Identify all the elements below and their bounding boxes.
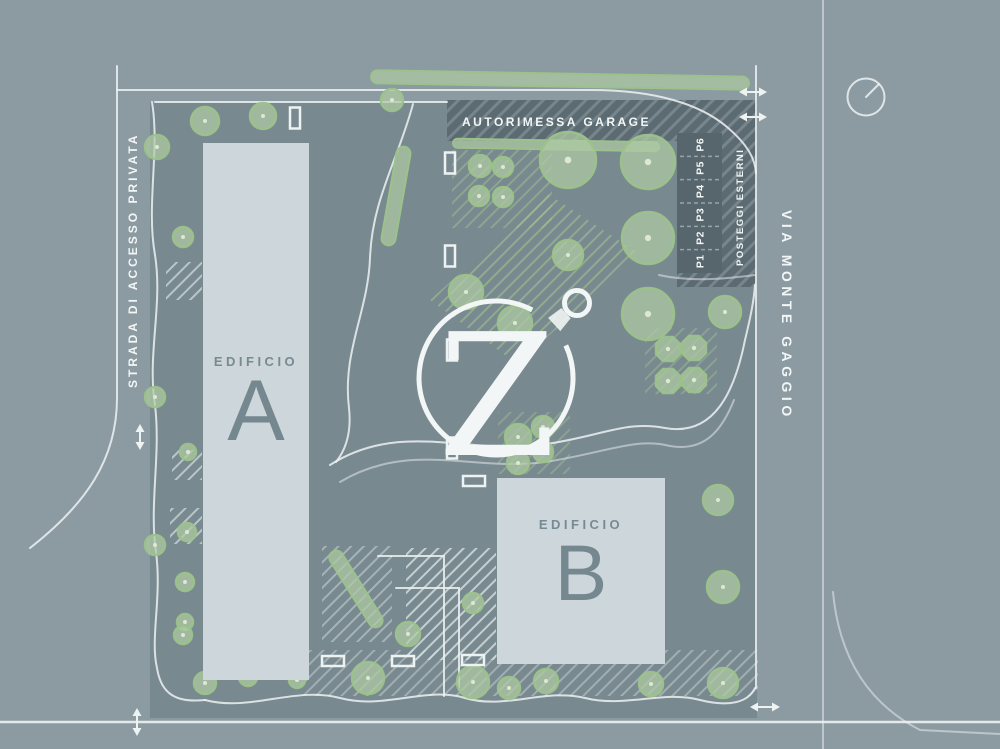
- tree-center-dot: [565, 157, 572, 164]
- shrub-center-dot: [692, 346, 696, 350]
- tree-center-dot: [203, 681, 207, 685]
- tree-center-dot: [471, 680, 475, 684]
- tree-center-dot: [645, 235, 651, 241]
- logo-letter: Z: [438, 298, 556, 496]
- tree-center-dot: [183, 620, 187, 624]
- parking-zone-label: POSTEGGI ESTERNI: [735, 149, 746, 266]
- tree-center-dot: [464, 290, 468, 294]
- shrub-center-dot: [666, 379, 670, 383]
- street-label-right: VIA MONTE GAGGIO: [779, 210, 795, 421]
- tree-center-dot: [721, 681, 725, 685]
- stall-label: P4: [695, 184, 707, 198]
- tree-center-dot: [544, 679, 548, 683]
- tree-center-dot: [366, 676, 370, 680]
- tree-center-dot: [183, 580, 187, 584]
- shrub-center-dot: [692, 378, 696, 382]
- tree-center-dot: [723, 310, 727, 314]
- stall-label: P3: [695, 208, 707, 222]
- tree-center-dot: [477, 194, 481, 198]
- tree-center-dot: [501, 195, 505, 199]
- tree-center-dot: [186, 450, 190, 454]
- tree-center-dot: [181, 633, 185, 637]
- tree-center-dot: [203, 119, 207, 123]
- tree-center-dot: [566, 253, 570, 257]
- parking-footer-hatch: [677, 273, 756, 287]
- garage-band-label: AUTORIMESSA GARAGE: [462, 115, 651, 129]
- tree-center-dot: [390, 98, 394, 102]
- shrub-center-dot: [666, 347, 670, 351]
- stall-label: P6: [695, 138, 707, 152]
- tree-center-dot: [261, 114, 265, 118]
- tree-center-dot: [645, 159, 651, 165]
- site-plan: EDIFICIO A EDIFICIO B P1P2P3P4P5P6 STRAD…: [0, 0, 1000, 749]
- tree-center-dot: [721, 585, 725, 589]
- tree-center-dot: [153, 395, 157, 399]
- tree-center-dot: [155, 145, 159, 149]
- tree-center-dot: [471, 601, 475, 605]
- site-plan-canvas: EDIFICIO A EDIFICIO B P1P2P3P4P5P6 STRAD…: [0, 0, 1000, 749]
- building-b-letter: B: [555, 528, 608, 617]
- stall-label: P1: [695, 254, 707, 268]
- tree-center-dot: [153, 543, 157, 547]
- building-a: EDIFICIO A: [203, 143, 309, 680]
- tree-center-dot: [181, 235, 185, 239]
- stall-label: P5: [695, 161, 707, 175]
- building-a-letter: A: [227, 363, 285, 459]
- tree-center-dot: [645, 311, 651, 317]
- white-hatch-patch-1: [166, 262, 202, 300]
- tree-center-dot: [501, 165, 505, 169]
- tree-center-dot: [406, 632, 410, 636]
- building-b: EDIFICIO B: [497, 478, 665, 664]
- street-label-left: STRADA DI ACCESSO PRIVATA: [126, 133, 140, 388]
- tree-center-dot: [649, 682, 653, 686]
- stall-label: P2: [695, 231, 707, 245]
- tree-center-dot: [716, 498, 720, 502]
- tree-center-dot: [507, 686, 511, 690]
- tree-center-dot: [478, 164, 482, 168]
- tree-center-dot: [185, 530, 189, 534]
